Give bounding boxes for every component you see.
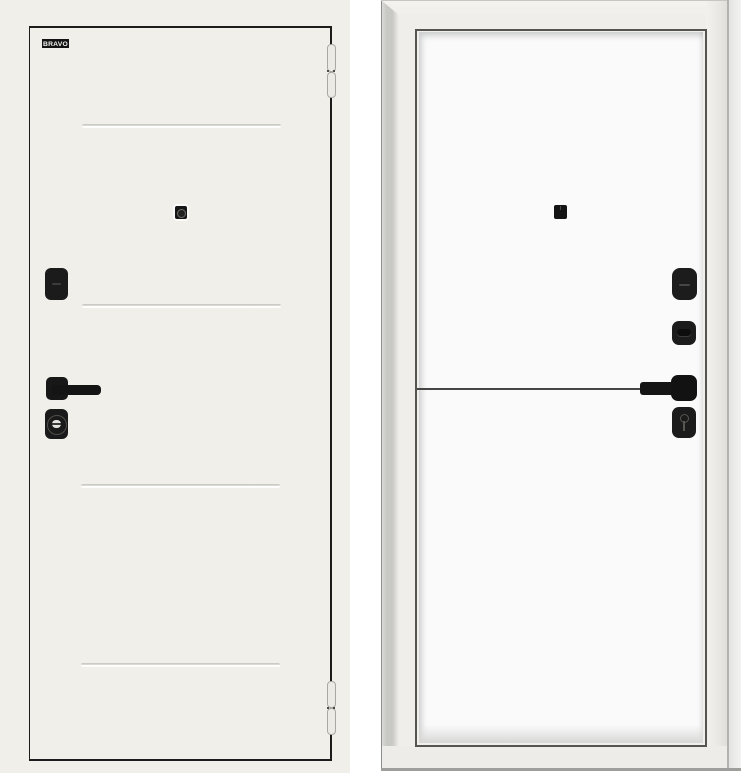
svg-text:BRAVO: BRAVO [43,41,68,48]
